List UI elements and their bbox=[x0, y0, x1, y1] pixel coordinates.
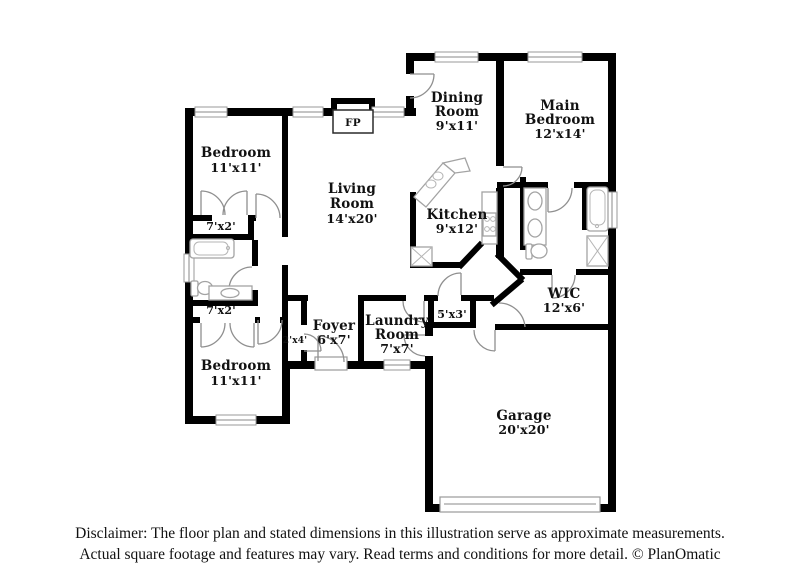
svg-text:Living: Living bbox=[328, 181, 376, 197]
wall-segment bbox=[497, 182, 548, 188]
window bbox=[528, 52, 582, 62]
room-label-garage: Garage 20'x20' bbox=[496, 408, 551, 437]
wall-segment bbox=[358, 295, 406, 301]
window bbox=[384, 360, 410, 370]
svg-text:Room: Room bbox=[330, 196, 374, 212]
wall-segment bbox=[406, 96, 414, 116]
svg-text:12'x6': 12'x6' bbox=[543, 300, 585, 315]
wall-segment bbox=[496, 53, 504, 166]
room-label-wic: WIC 12'x6' bbox=[543, 286, 585, 315]
pantry-shelves bbox=[411, 247, 432, 266]
wall-segment bbox=[331, 98, 375, 104]
svg-text:9'x11': 9'x11' bbox=[436, 118, 478, 133]
svg-text:7'x7': 7'x7' bbox=[380, 341, 414, 356]
svg-text:14'x20': 14'x20' bbox=[326, 211, 377, 226]
svg-text:Bedroom: Bedroom bbox=[201, 358, 271, 374]
toilet bbox=[526, 244, 547, 259]
wall-segment bbox=[520, 269, 552, 275]
floor-plan-page: FP bbox=[0, 0, 800, 582]
bathtub bbox=[587, 187, 608, 231]
wall-segment bbox=[576, 269, 616, 275]
wall-segment bbox=[301, 298, 307, 325]
wall-segment bbox=[495, 324, 616, 330]
room-label-hall-closet: 5'x3' bbox=[437, 308, 467, 321]
wall-segment bbox=[301, 350, 307, 363]
bathtub bbox=[190, 239, 234, 258]
double-sink-vanity bbox=[524, 188, 546, 245]
wall-segment bbox=[282, 361, 290, 424]
garage-door bbox=[440, 497, 600, 512]
window bbox=[216, 415, 256, 425]
room-label-bedroom-bottom: Bedroom 11'x11' bbox=[201, 358, 271, 388]
room-label-dining: Dining Room 9'x11' bbox=[431, 90, 484, 133]
wall-segment bbox=[282, 265, 288, 361]
svg-text:11'x11': 11'x11' bbox=[210, 373, 261, 388]
wall-segment bbox=[582, 188, 587, 230]
svg-text:9'x12': 9'x12' bbox=[436, 221, 478, 236]
wall-segment bbox=[425, 356, 433, 512]
svg-text:12'x14': 12'x14' bbox=[534, 126, 585, 141]
room-label-bedroom-top: Bedroom 11'x11' bbox=[201, 145, 271, 175]
disclaimer-line-2: Actual square footage and features may v… bbox=[79, 546, 720, 563]
wall-segment bbox=[248, 218, 254, 240]
room-label-closet-top: 7'x2' bbox=[206, 220, 236, 233]
fireplace-label: FP bbox=[345, 117, 361, 129]
svg-text:6'x7': 6'x7' bbox=[317, 332, 351, 347]
wall-segment bbox=[476, 295, 494, 301]
wall-segment bbox=[358, 295, 364, 367]
svg-text:11'x11': 11'x11' bbox=[210, 160, 261, 175]
window bbox=[293, 107, 323, 117]
wall-segment bbox=[185, 317, 200, 323]
room-label-closet-mid: 7'x2' bbox=[206, 304, 236, 317]
window bbox=[435, 52, 478, 62]
wall-segment bbox=[282, 218, 288, 237]
svg-text:Bedroom: Bedroom bbox=[201, 145, 271, 161]
sink-vanity bbox=[209, 286, 252, 300]
window bbox=[195, 107, 227, 117]
shower bbox=[587, 236, 608, 266]
wall-segment bbox=[608, 330, 616, 512]
wall-segment bbox=[282, 108, 288, 218]
window bbox=[372, 107, 404, 117]
wall-segment bbox=[252, 240, 258, 266]
room-label-foyer: Foyer 6'x7' bbox=[313, 318, 356, 347]
background bbox=[0, 0, 800, 582]
svg-text:20'x20': 20'x20' bbox=[498, 422, 549, 437]
disclaimer-line-1: Disclaimer: The floor plan and stated di… bbox=[75, 525, 725, 542]
wall-segment bbox=[280, 317, 288, 323]
floor-plan-drawing: FP bbox=[0, 0, 800, 582]
wall-segment bbox=[428, 322, 476, 328]
fireplace: FP bbox=[333, 110, 373, 133]
room-label-foyer-closet: 2'x4' bbox=[283, 336, 307, 346]
room-label-living: Living Room 14'x20' bbox=[326, 181, 377, 226]
